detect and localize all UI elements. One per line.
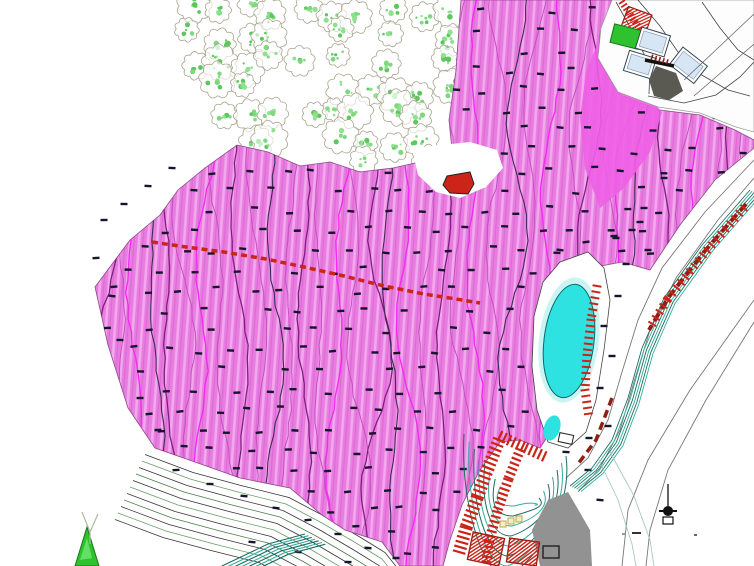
cad-drawing-stage [0, 0, 754, 566]
topographic-site-plan-canvas[interactable] [0, 0, 754, 566]
